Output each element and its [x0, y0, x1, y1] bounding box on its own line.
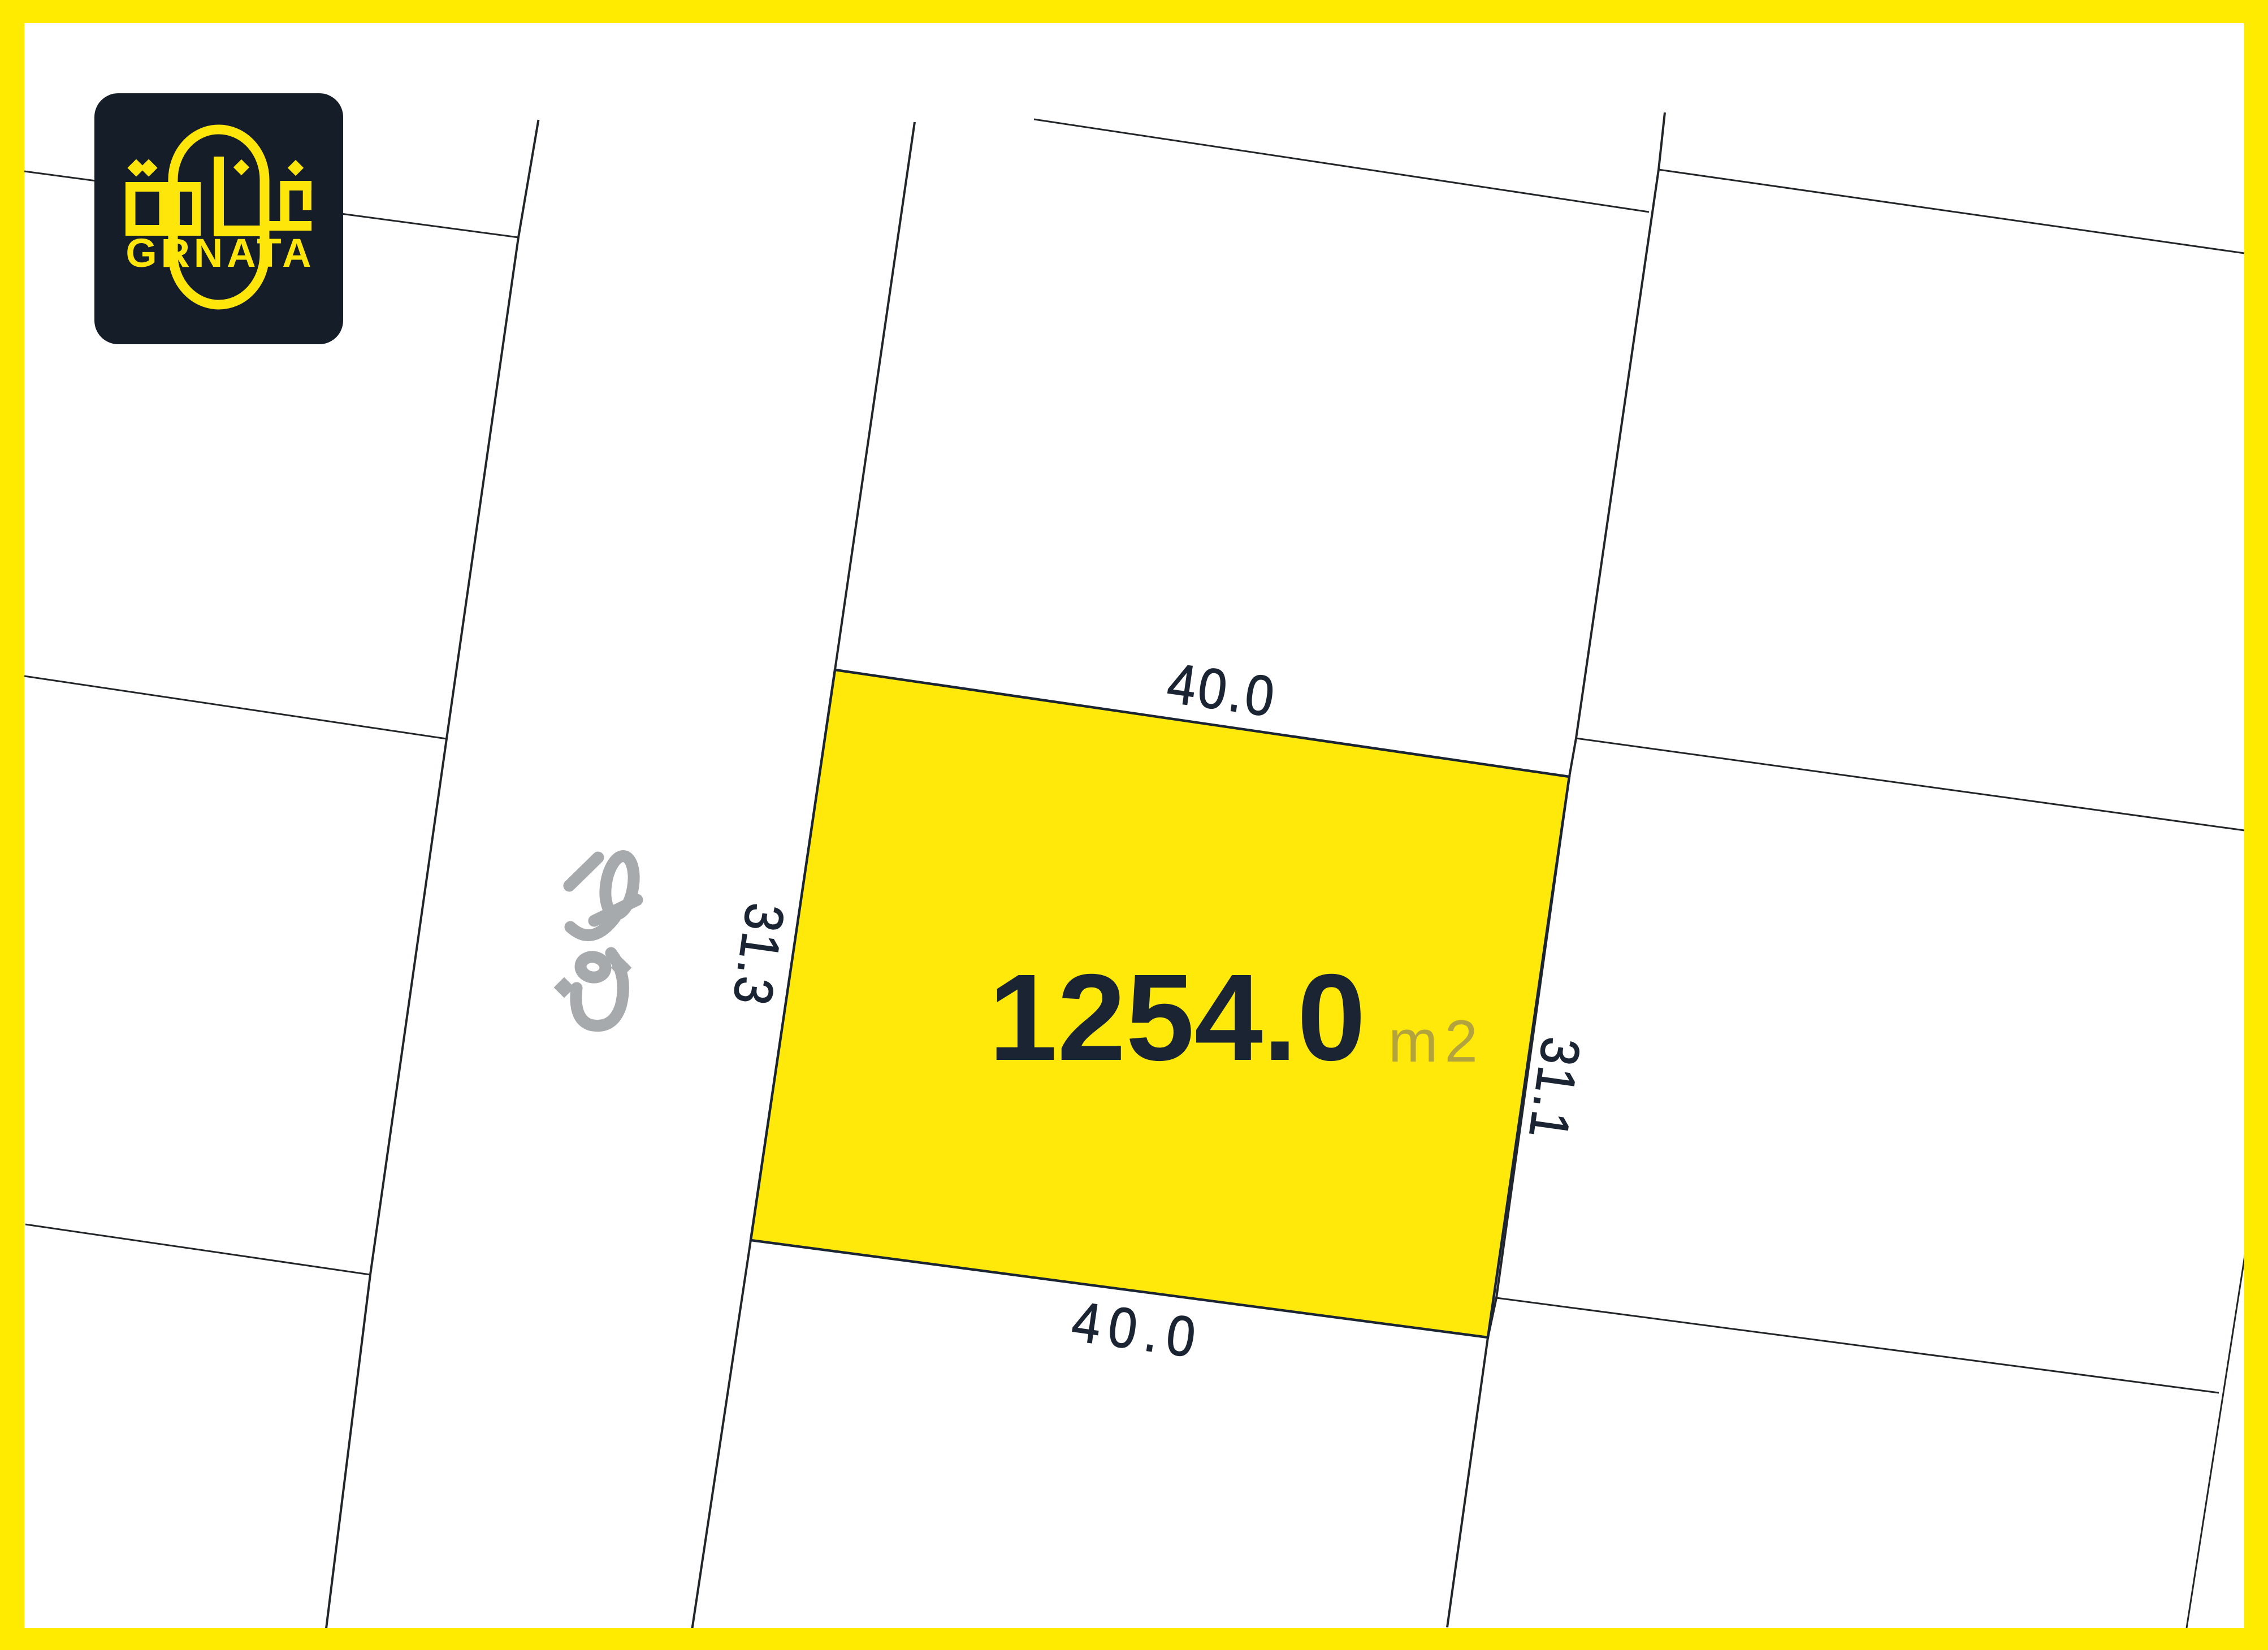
svg-text:m2: m2	[1388, 1008, 1484, 1075]
svg-text:GRNATA: GRNATA	[125, 231, 315, 276]
svg-text:1254.0: 1254.0	[989, 949, 1366, 1086]
